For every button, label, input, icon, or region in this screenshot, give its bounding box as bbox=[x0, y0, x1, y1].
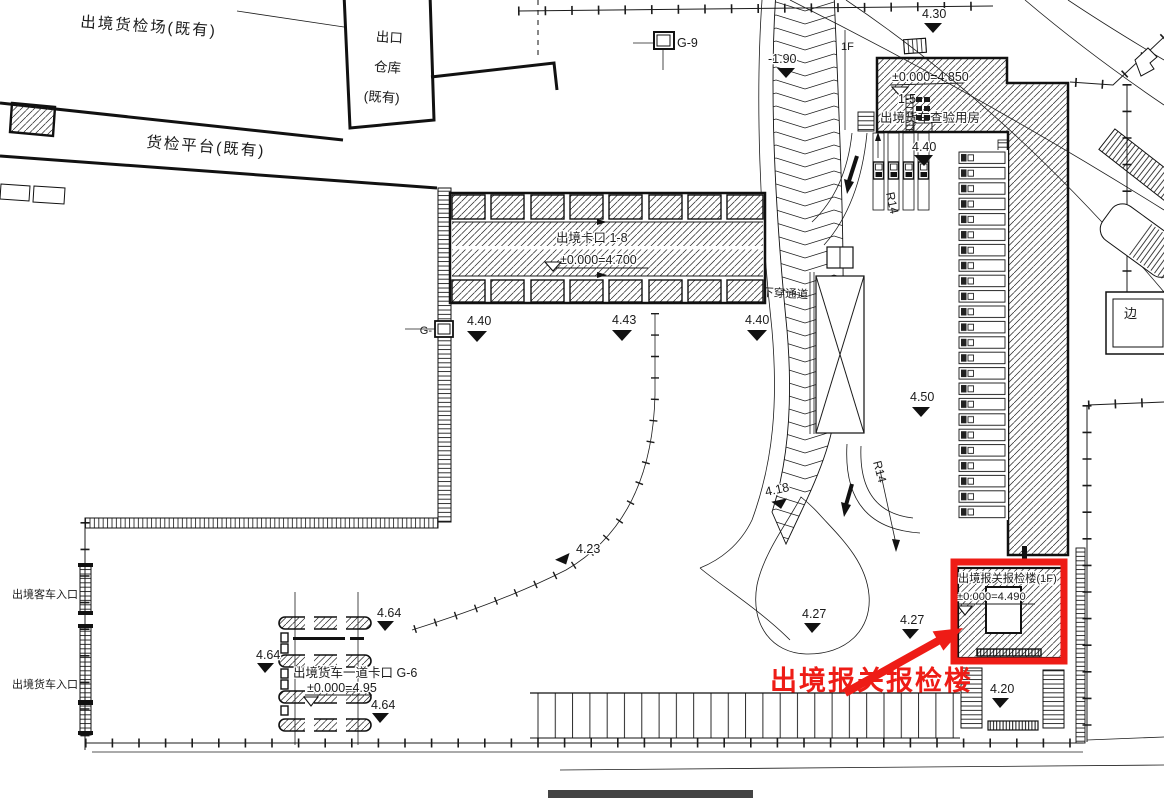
truck-entrance-gate bbox=[80, 627, 91, 735]
lane-booths bbox=[874, 162, 929, 179]
customs-building-label: 出境报关报检楼(1F) bbox=[958, 571, 1057, 585]
left-entrance-gates: 出境客车入口 出境货车入口 bbox=[12, 563, 93, 735]
truck-entrance-label: 出境货车入口 bbox=[12, 677, 78, 691]
rounded-parking-bay bbox=[1095, 198, 1164, 283]
north-fence-ladder bbox=[85, 518, 438, 528]
east-fence-ladder bbox=[1076, 548, 1085, 743]
site-plan-drawing: 出境货检场(既有) 货检平台(既有) 出口 仓库 (既有) bbox=[0, 0, 1164, 800]
bus-entrance-label: 出境客车入口 bbox=[12, 587, 78, 601]
elevation-440c: 4.40 bbox=[912, 140, 936, 154]
elevation-440a: 4.40 bbox=[467, 314, 491, 328]
g9-label: G-9 bbox=[677, 36, 698, 50]
g-left-label: G- bbox=[420, 325, 433, 337]
g6-elevation: ±0.000=4.95 bbox=[307, 681, 377, 695]
elevation-464b: 4.64 bbox=[256, 648, 280, 662]
elevation-450: 4.50 bbox=[910, 390, 934, 404]
gate-1-8-label: 出境卡口 1-8 bbox=[556, 230, 628, 245]
customs-building-elevation: ±0.000=4.490 bbox=[957, 591, 1026, 603]
small-roadside-building bbox=[1135, 48, 1157, 76]
elevation-443: 4.43 bbox=[612, 313, 636, 327]
speed-bump-bar bbox=[988, 721, 1038, 730]
diagonal-parking-strip bbox=[1099, 129, 1164, 206]
elevation-427b: 4.27 bbox=[900, 613, 924, 627]
small-structure-a bbox=[0, 184, 30, 201]
yard-divider-line bbox=[237, 11, 344, 27]
platform-top-corner bbox=[431, 63, 557, 90]
bottom-parking-row bbox=[530, 693, 960, 798]
small-structure-b bbox=[33, 186, 65, 204]
yard-label: 出境货检场(既有) bbox=[80, 12, 218, 40]
g6-label: 出境货车一道卡口 G-6 bbox=[293, 665, 417, 680]
warehouse-label-3: (既有) bbox=[363, 89, 400, 106]
g9-marker: G-9 bbox=[633, 32, 698, 70]
stairs-icon bbox=[858, 112, 874, 131]
inspection-building-elevation: ±0.000=4.850 bbox=[892, 70, 969, 84]
existing-facility-complex: 出境货检场(既有) 货检平台(既有) 出口 仓库 (既有) bbox=[0, 0, 557, 204]
stairs-icon bbox=[998, 140, 1008, 151]
r14-bottom-curve: R14 bbox=[841, 444, 920, 552]
platform-label: 货检平台(既有) bbox=[146, 133, 266, 160]
elevation-427a: 4.27 bbox=[802, 607, 826, 621]
red-annotation-label: 出境报关报检楼 bbox=[770, 665, 973, 696]
upper-road-gate bbox=[904, 38, 927, 54]
small-hatched-structure bbox=[10, 103, 55, 136]
boundary-box-label: 边 bbox=[1124, 306, 1137, 321]
elevation-430: 4.30 bbox=[922, 7, 946, 21]
bus-entrance-gate bbox=[80, 566, 91, 614]
warehouse-label-2: 仓库 bbox=[374, 59, 402, 76]
elevation-464a: 4.64 bbox=[377, 606, 401, 620]
platform-bottom-edge bbox=[0, 156, 437, 188]
warehouse-label-1: 出口 bbox=[375, 29, 403, 46]
red-annotation: 出境报关报检楼 bbox=[770, 628, 973, 697]
customs-building-canopy bbox=[977, 649, 1041, 656]
ramp-chevron-band bbox=[772, 0, 843, 544]
site-plan-canvas: 出境货检场(既有) 货检平台(既有) 出口 仓库 (既有) bbox=[0, 0, 1164, 800]
floor-1f-label: 1F bbox=[841, 41, 854, 53]
elevation-423: 4.23 bbox=[576, 542, 600, 556]
g-left-marker: G- bbox=[405, 321, 453, 337]
r14-bottom-label: R14 bbox=[870, 459, 889, 484]
elevation-m190: -1.90 bbox=[768, 52, 797, 66]
customs-declaration-building: 出境报关报检楼(1F) ±0.000=4.490 bbox=[954, 562, 1064, 661]
gate-1-8-elevation: ±0.000=4.700 bbox=[560, 253, 637, 267]
elevation-440b: 4.40 bbox=[745, 313, 769, 327]
elevation-420: 4.20 bbox=[990, 682, 1014, 696]
elevation-464c: 4.64 bbox=[371, 698, 395, 712]
road-edge-bar bbox=[548, 790, 753, 798]
exit-gate-1-8: 出境卡口 1-8 ±0.000=4.700 bbox=[450, 193, 765, 303]
boundary-box bbox=[1106, 292, 1164, 354]
